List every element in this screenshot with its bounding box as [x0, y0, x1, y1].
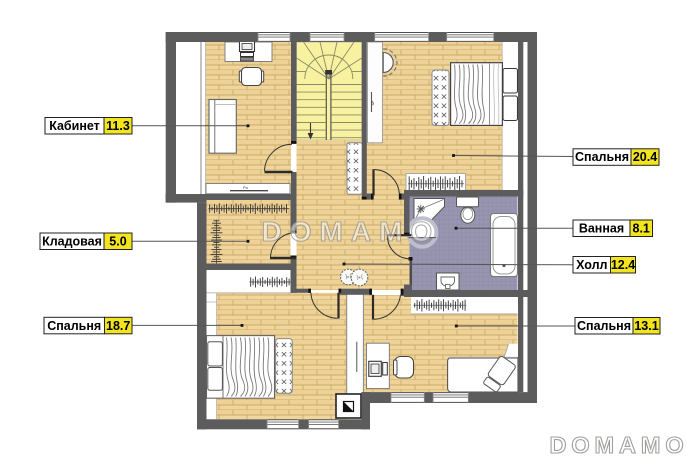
- svg-text:Po: Po: [243, 185, 249, 190]
- svg-text:Кабинет: Кабинет: [49, 119, 100, 133]
- svg-text:12.4: 12.4: [611, 258, 635, 272]
- svg-text:13.1: 13.1: [634, 319, 658, 333]
- svg-text:DOMAMO: DOMAMO: [550, 432, 689, 458]
- svg-text:20.4: 20.4: [633, 150, 657, 164]
- svg-text:Кладовая: Кладовая: [42, 234, 102, 248]
- svg-text:18.7: 18.7: [106, 319, 130, 333]
- svg-text:Спальня: Спальня: [47, 319, 101, 333]
- svg-text:Ванная: Ванная: [579, 221, 624, 235]
- svg-text:5.0: 5.0: [109, 234, 126, 248]
- svg-text:8.1: 8.1: [633, 221, 650, 235]
- svg-text:11.3: 11.3: [106, 119, 130, 133]
- svg-text:DOMAMO: DOMAMO: [262, 216, 441, 247]
- svg-text:Спальня: Спальня: [575, 150, 629, 164]
- svg-text:Спальня: Спальня: [577, 319, 631, 333]
- svg-text:Холл: Холл: [576, 258, 607, 272]
